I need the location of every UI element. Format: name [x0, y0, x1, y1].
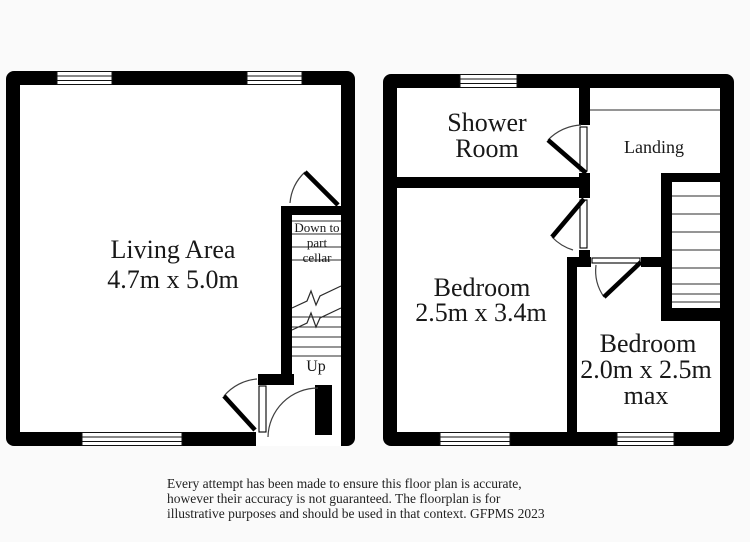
disclaimer: Every attempt has been made to ensure th…: [167, 476, 545, 521]
disclaimer-line-3: illustrative purposes and should be used…: [167, 506, 545, 521]
door-frame: [592, 258, 640, 263]
window-bottom: [82, 433, 182, 446]
ground-floor-plan: Living Area 4.7m x 5.0m Down to part cel…: [6, 71, 355, 446]
bedroom-1-dims: 2.5m x 3.4m: [415, 298, 546, 327]
window-top-right: [247, 72, 302, 85]
bedroom-2-label: Bedroom: [600, 329, 697, 358]
down-to-cellar-label-line2: part: [307, 235, 328, 250]
down-to-cellar-label-line3: cellar: [303, 250, 333, 265]
door-frame: [580, 127, 587, 171]
entry-wall-stub: [315, 385, 332, 435]
window-top-left: [57, 72, 112, 85]
door-frame: [259, 386, 266, 432]
disclaimer-line-2: however their accuracy is not guaranteed…: [167, 491, 501, 506]
wall-bedroom1-bedroom2: [567, 257, 577, 432]
floorplan-image: Living Area 4.7m x 5.0m Down to part cel…: [0, 0, 750, 542]
down-to-cellar-label-line1: Down to: [294, 220, 339, 235]
shower-room-label-line1: Shower: [447, 108, 527, 137]
landing-label: Landing: [624, 137, 684, 157]
floorplan-drawing: Living Area 4.7m x 5.0m Down to part cel…: [0, 0, 750, 542]
up-label: Up: [306, 358, 326, 375]
living-area-dims: 4.7m x 5.0m: [107, 265, 238, 294]
bedroom-2-dims: 2.0m x 2.5m: [580, 355, 711, 384]
stair-side-wall: [281, 206, 292, 375]
shower-room-label-line2: Room: [455, 134, 519, 163]
wall-shower-landing: [579, 88, 590, 125]
window-bedroom-1: [440, 433, 510, 446]
stair-bottom-wall: [661, 308, 720, 321]
window-shower-room: [460, 75, 517, 88]
bedroom-2-dims-max: max: [624, 381, 669, 410]
first-floor-plan: Shower Room Landing Bedroom 2.5m x 3.4m …: [383, 74, 734, 446]
living-area-label: Living Area: [111, 235, 236, 264]
disclaimer-line-1: Every attempt has been made to ensure th…: [167, 476, 522, 491]
stair-side-wall: [661, 173, 672, 317]
door-frame: [580, 200, 587, 248]
wall-shower-bedroom1: [397, 177, 590, 188]
stair-jog-wall: [258, 374, 294, 385]
window-bedroom-2: [617, 433, 674, 446]
